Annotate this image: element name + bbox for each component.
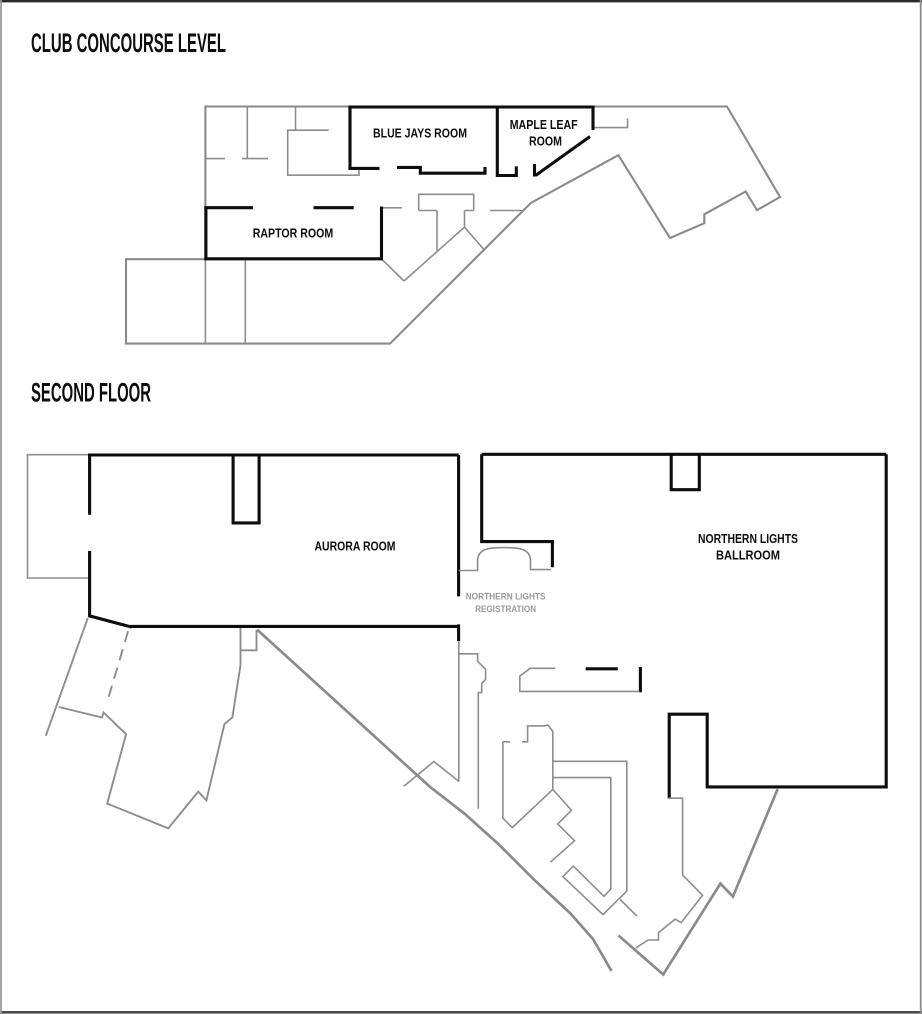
- svg-text:NORTHERN LIGHTS: NORTHERN LIGHTS: [466, 592, 546, 602]
- svg-text:RAPTOR ROOM: RAPTOR ROOM: [253, 227, 334, 241]
- svg-text:REGISTRATION: REGISTRATION: [475, 604, 536, 614]
- svg-text:NORTHERN LIGHTS: NORTHERN LIGHTS: [698, 532, 798, 546]
- svg-text:BALLROOM: BALLROOM: [716, 549, 780, 563]
- svg-text:SECOND FLOOR: SECOND FLOOR: [31, 377, 151, 407]
- svg-text:CLUB CONCOURSE LEVEL: CLUB CONCOURSE LEVEL: [31, 28, 226, 58]
- svg-text:AURORA ROOM: AURORA ROOM: [315, 539, 396, 553]
- svg-text:ROOM: ROOM: [529, 134, 562, 148]
- svg-text:BLUE JAYS ROOM: BLUE JAYS ROOM: [373, 127, 467, 141]
- svg-text:MAPLE LEAF: MAPLE LEAF: [510, 118, 578, 132]
